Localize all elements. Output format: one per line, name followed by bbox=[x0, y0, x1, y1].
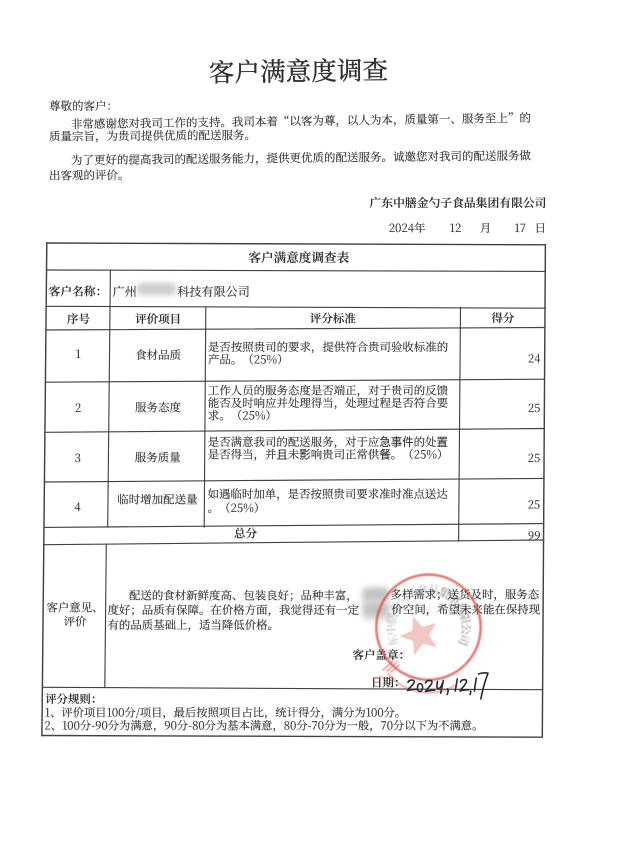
svg-text:为了更好的提高我司的配送服务能力，提供更优质的配送服务。诚邀: 为了更好的提高我司的配送服务能力，提供更优质的配送服务。诚邀您对我司的配送服务做 bbox=[71, 147, 532, 168]
svg-text:3: 3 bbox=[75, 450, 81, 466]
svg-text:广州: 广州 bbox=[113, 283, 137, 300]
svg-text:评分标准: 评分标准 bbox=[310, 310, 356, 326]
svg-text:25: 25 bbox=[528, 497, 541, 513]
svg-text:有的品质基础上，适当降低价格。: 有的品质基础上，适当降低价格。 bbox=[108, 617, 280, 633]
svg-text:食材品质: 食材品质 bbox=[135, 347, 181, 363]
svg-text:12: 12 bbox=[450, 220, 462, 236]
svg-text:25: 25 bbox=[528, 450, 541, 466]
svg-text:4: 4 bbox=[74, 499, 81, 515]
svg-text:日: 日 bbox=[535, 220, 546, 236]
svg-text:客户满意度调查: 客户满意度调查 bbox=[209, 51, 389, 90]
svg-text:序号: 序号 bbox=[67, 311, 90, 327]
svg-text:广东中膳金勺子食品集团有限公司: 广东中膳金勺子食品集团有限公司 bbox=[370, 194, 547, 211]
svg-text:。（25%）: 。（25%） bbox=[208, 500, 266, 516]
svg-text:产品。（25%）: 产品。（25%） bbox=[208, 351, 289, 367]
svg-text:2024年: 2024年 bbox=[389, 220, 426, 236]
svg-text:24: 24 bbox=[528, 351, 540, 367]
svg-text:是否得当，并且未影响贵司正常供餐。（25%）: 是否得当，并且未影响贵司正常供餐。（25%） bbox=[208, 447, 449, 463]
svg-text:评价: 评价 bbox=[64, 614, 87, 630]
svg-text:求。（25%）: 求。（25%） bbox=[208, 408, 277, 424]
svg-text:服务态度: 服务态度 bbox=[135, 400, 181, 416]
svg-text:配送的食材新鲜度高、包装良好；品种丰富，: 配送的食材新鲜度高、包装良好；品种丰富， bbox=[129, 587, 358, 603]
svg-text:度好；品质有保障。在价格方面，我觉得还有一定: 度好；品质有保障。在价格方面，我觉得还有一定 bbox=[108, 602, 360, 618]
svg-text:17: 17 bbox=[514, 220, 526, 236]
svg-text:2: 2 bbox=[75, 400, 81, 416]
svg-text:99: 99 bbox=[528, 527, 541, 543]
svg-text:客户满意度调查表: 客户满意度调查表 bbox=[248, 247, 349, 266]
svg-text:科技有限公司: 科技有限公司 bbox=[177, 283, 250, 300]
svg-text:得分: 得分 bbox=[491, 310, 514, 326]
svg-text:质量宗旨，为贵司提供优质的配送服务。: 质量宗旨，为贵司提供优质的配送服务。 bbox=[49, 127, 256, 144]
svg-text:评价项目: 评价项目 bbox=[135, 311, 181, 327]
svg-text:2、100分-90分为满意，90分-80分为基本满意，80分: 2、100分-90分为满意，90分-80分为基本满意，80分-70分为一般，70… bbox=[44, 718, 483, 734]
svg-text:服务质量: 服务质量 bbox=[135, 450, 181, 466]
svg-text:月: 月 bbox=[480, 220, 491, 236]
svg-text:临时增加配送量: 临时增加配送量 bbox=[117, 492, 198, 508]
svg-text:尊敬的客户：: 尊敬的客户： bbox=[49, 98, 118, 114]
svg-text:25: 25 bbox=[528, 400, 541, 416]
svg-text:出客观的评价。: 出客观的评价。 bbox=[49, 167, 130, 183]
svg-text:总分: 总分 bbox=[234, 526, 258, 542]
svg-text:1: 1 bbox=[76, 346, 81, 362]
svg-text:客户名称：: 客户名称： bbox=[49, 284, 107, 300]
